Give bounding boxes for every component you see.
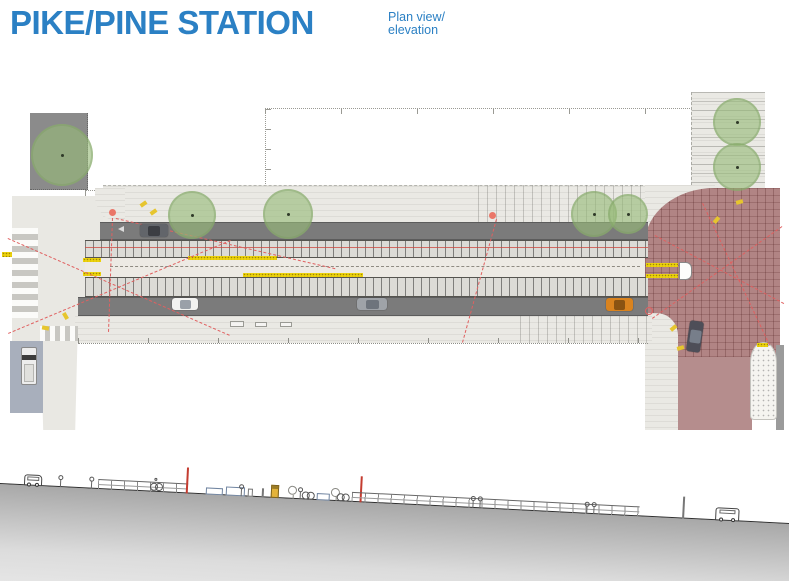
- cyclist: [150, 483, 163, 492]
- pedestrian: [57, 475, 64, 487]
- ticket-machine-top: [272, 486, 278, 489]
- car-dark-westbound: [140, 224, 168, 237]
- tactile-strip-south-platform: [243, 273, 363, 277]
- sight-line-circle: [645, 307, 653, 315]
- tactile-strip-east-north: [646, 263, 678, 267]
- car-silver-eastbound: [357, 298, 387, 310]
- car-cabin: [148, 226, 160, 236]
- sign-post: [262, 488, 264, 497]
- sight-line-point: [489, 212, 496, 219]
- red-pole: [186, 467, 189, 493]
- north-platform: [85, 240, 648, 258]
- street-tree: [608, 194, 648, 234]
- truck-windshield: [22, 355, 36, 360]
- tree-trunk: [593, 213, 596, 216]
- guard-railing: [98, 479, 188, 494]
- car-orange-eastbound: [606, 298, 633, 311]
- cyclist-head: [154, 478, 157, 481]
- bike-rack: [230, 321, 244, 327]
- street-tree: [168, 191, 216, 239]
- ticket-machine: [271, 485, 280, 498]
- ground-profile: [0, 483, 789, 581]
- transit-lane-centerline: [110, 266, 640, 267]
- car-cabin: [614, 300, 625, 310]
- van-window: [28, 476, 39, 481]
- pedestrian: [590, 502, 597, 514]
- bike-rack-elevation: [302, 491, 315, 500]
- pedestrian-island: [750, 342, 777, 420]
- van-wheel: [27, 482, 31, 486]
- center-transit-lanes: [85, 258, 645, 277]
- westbound-arrow-icon: [118, 226, 124, 232]
- pedestrian: [88, 476, 95, 488]
- south-platform: [85, 277, 648, 297]
- car-elevation: [715, 507, 740, 521]
- tactile-strip-east-south: [646, 274, 678, 278]
- station-dimension-line: [78, 338, 648, 344]
- pedestrian: [469, 496, 476, 508]
- tree-trunk: [191, 214, 194, 217]
- pedestrian: [238, 484, 245, 496]
- platform-red-guideline: [85, 247, 648, 248]
- street-tree: [263, 189, 313, 239]
- car-wheel: [731, 518, 735, 522]
- tree-trunk: [287, 213, 290, 216]
- east-curb-lane: [776, 345, 784, 430]
- car-wheel: [719, 517, 723, 521]
- frontage-line-upper: [265, 108, 690, 114]
- truck-in-alley: [21, 347, 37, 385]
- bike-rack-elevation: [337, 493, 350, 502]
- pedestrian: [583, 502, 590, 514]
- car-cabin: [366, 300, 379, 309]
- island-tactile-strip: [757, 343, 768, 347]
- car-cabin: [689, 330, 702, 344]
- car-white-eastbound: [172, 298, 198, 310]
- plan-view: [0, 0, 789, 440]
- drawing-sheet: PIKE/PINE STATION Plan view/ elevation: [0, 0, 789, 581]
- bench: [255, 322, 267, 327]
- station-bench: [317, 493, 330, 501]
- elevation-view: [0, 440, 789, 581]
- van-wheel: [35, 483, 39, 487]
- sight-line-point: [109, 209, 116, 216]
- bench: [280, 322, 292, 327]
- frontage-line-vertical: [265, 108, 271, 190]
- light-pole: [682, 497, 685, 519]
- tactile-strip-west-north: [83, 258, 101, 262]
- tree-trunk: [627, 213, 630, 216]
- car-window: [720, 509, 736, 514]
- platform-shelter: [679, 262, 692, 280]
- tree-trunk: [736, 166, 739, 169]
- station-bench: [206, 487, 223, 495]
- trash-bin: [248, 489, 253, 497]
- tactile-strip-north-platform: [188, 256, 277, 260]
- truck-cargo: [24, 364, 34, 382]
- tree-trunk: [61, 154, 64, 157]
- van-elevation: [24, 474, 43, 486]
- tree-trunk: [736, 121, 739, 124]
- street-tree: [31, 124, 93, 186]
- pedestrian: [476, 496, 483, 508]
- car-cabin: [180, 300, 191, 309]
- street-tree: [713, 98, 761, 146]
- street-tree: [713, 143, 761, 191]
